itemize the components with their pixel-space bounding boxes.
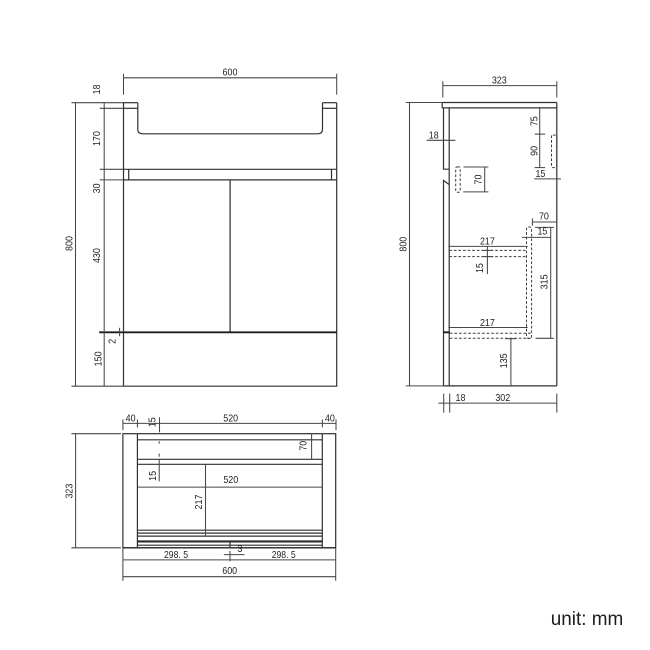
svg-text:800: 800: [64, 236, 75, 251]
svg-text:15: 15: [535, 169, 545, 180]
svg-text:15: 15: [537, 227, 547, 238]
svg-text:3: 3: [237, 544, 242, 555]
svg-text:298. 5: 298. 5: [272, 550, 296, 561]
svg-text:15: 15: [475, 263, 486, 273]
svg-text:15: 15: [148, 417, 159, 427]
svg-text:70: 70: [299, 440, 310, 450]
svg-text:600: 600: [222, 566, 237, 577]
svg-text:217: 217: [194, 494, 205, 509]
svg-text:430: 430: [92, 248, 103, 263]
svg-text:15: 15: [148, 471, 159, 481]
svg-text:520: 520: [223, 413, 238, 424]
svg-text:70: 70: [539, 212, 549, 223]
svg-text:18: 18: [92, 84, 103, 94]
svg-text:600: 600: [223, 68, 238, 79]
svg-text:18: 18: [429, 130, 439, 141]
svg-text:217: 217: [480, 318, 495, 329]
svg-text:40: 40: [325, 413, 335, 424]
svg-text:170: 170: [92, 131, 103, 146]
svg-text:75: 75: [530, 116, 541, 126]
svg-text:315: 315: [540, 274, 551, 289]
svg-text:70: 70: [474, 174, 485, 184]
svg-text:302: 302: [495, 393, 510, 404]
svg-text:unit: mm: unit: mm: [551, 608, 624, 630]
svg-text:135: 135: [499, 353, 510, 368]
svg-text:30: 30: [92, 183, 103, 193]
svg-text:217: 217: [480, 237, 495, 248]
svg-text:90: 90: [530, 146, 541, 156]
svg-text:2: 2: [108, 339, 119, 344]
svg-text:323: 323: [65, 483, 76, 498]
svg-text:520: 520: [223, 475, 238, 486]
svg-text:150: 150: [94, 351, 105, 366]
svg-text:40: 40: [126, 413, 136, 424]
svg-text:18: 18: [456, 393, 466, 404]
svg-text:800: 800: [399, 236, 410, 251]
svg-text:323: 323: [492, 75, 507, 86]
svg-text:298. 5: 298. 5: [164, 550, 188, 561]
